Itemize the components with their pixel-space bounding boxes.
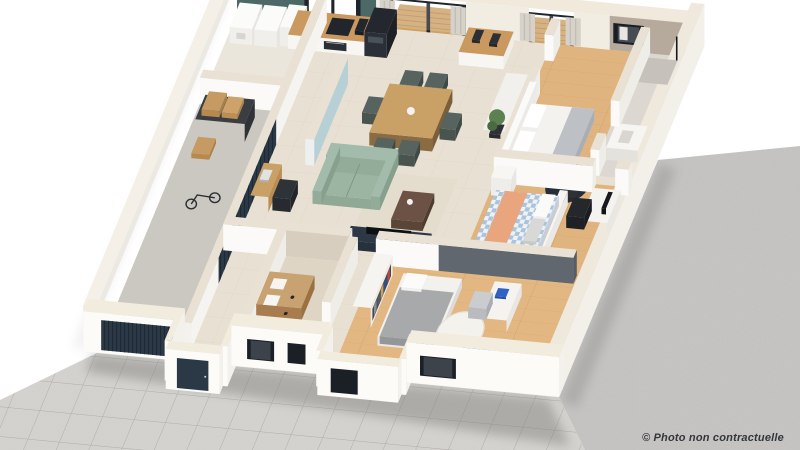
table-decor — [407, 199, 413, 205]
curtain-fold — [460, 8, 461, 34]
floorplan-image: © Photo non contractuelle — [0, 0, 800, 450]
curtain-fold — [524, 14, 525, 40]
desk-chair — [468, 307, 486, 320]
window-sash — [331, 0, 334, 14]
desk-chair — [272, 197, 290, 212]
watermark-text: © Photo non contractuelle — [642, 432, 784, 444]
window — [288, 343, 306, 365]
curtain — [451, 6, 466, 36]
sofa-arm — [313, 191, 322, 205]
washer-door — [236, 33, 245, 40]
dining-chair — [396, 154, 414, 167]
sofa-arm — [371, 196, 380, 210]
front-door — [177, 358, 209, 391]
monitor — [602, 208, 607, 214]
window-glass — [424, 357, 453, 378]
blue-accent-wall — [305, 139, 314, 166]
window-reflection — [620, 27, 628, 41]
table-bowl — [407, 107, 415, 115]
curtain-fold — [570, 18, 571, 44]
curtain-fold — [529, 15, 530, 41]
porch-back-wall — [220, 346, 223, 394]
desk-chair — [566, 216, 584, 230]
curtain — [520, 13, 535, 42]
window-glass — [251, 340, 271, 360]
dryer — [254, 29, 276, 47]
door-handle — [204, 376, 206, 378]
curtain-fold — [455, 7, 456, 33]
floorplan-svg — [0, 0, 800, 450]
porch2-door — [331, 368, 358, 395]
master-wall — [545, 34, 554, 61]
appliance-column — [364, 32, 386, 58]
curtain — [566, 17, 581, 47]
shower-room-wall — [611, 100, 620, 127]
curtain-fold — [575, 19, 576, 45]
dining-chair — [440, 128, 456, 141]
plant — [487, 121, 497, 131]
